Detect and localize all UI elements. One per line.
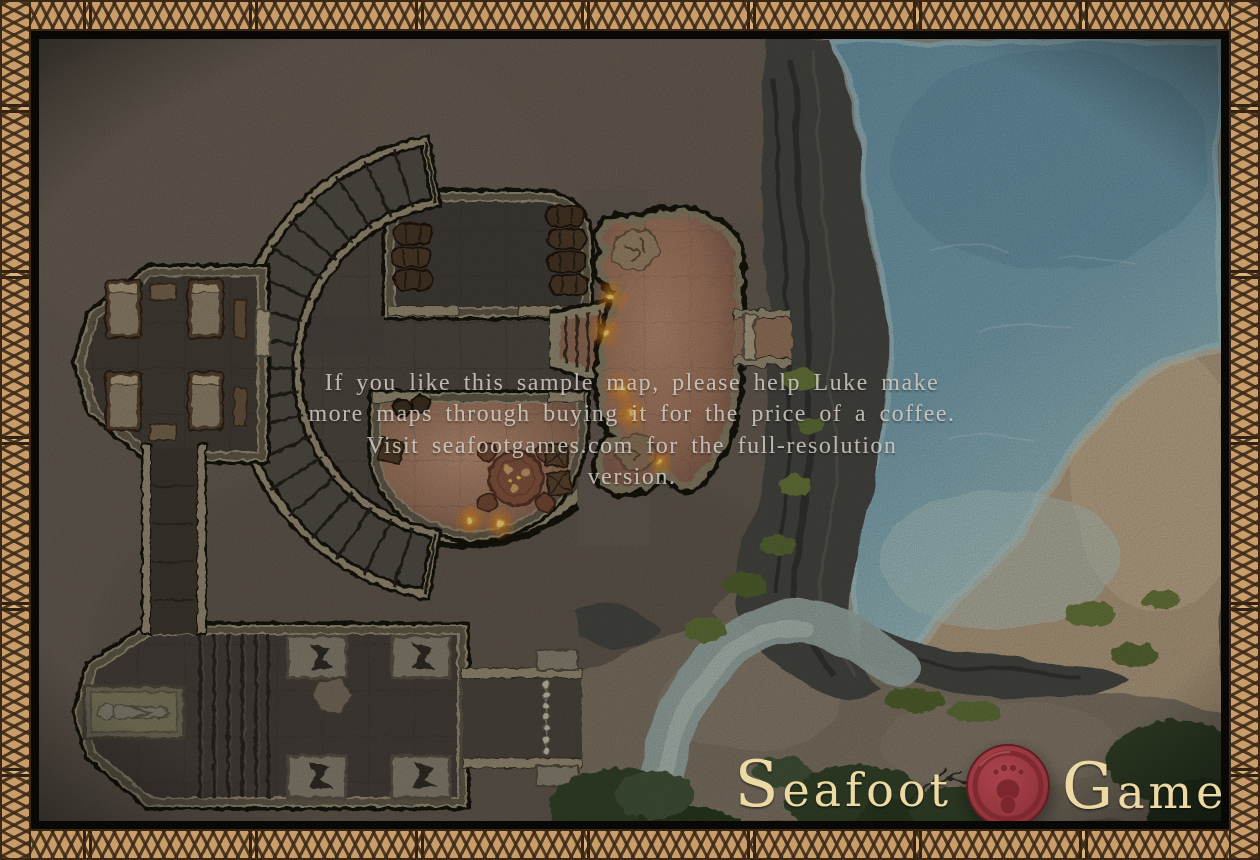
celtic-border-bottom (0, 829, 1260, 860)
battle-map-canvas: If you like this sample map, please help… (0, 0, 1260, 860)
map-frame: If you like this sample map, please help… (31, 31, 1229, 829)
vignette (39, 39, 1221, 821)
celtic-border-right (1229, 0, 1260, 860)
celtic-border-top (0, 0, 1260, 31)
watermark-line-1: If you like this sample map, please help… (325, 370, 940, 396)
watermark-line-2: more maps through buying it for the pric… (308, 401, 955, 427)
dungeon-shore-map: If you like this sample map, please help… (39, 39, 1221, 821)
watermark-line-4: version. (588, 464, 677, 490)
watermark-line-3: Visit seafootgames.com for the full-reso… (367, 433, 898, 459)
celtic-border-left (0, 0, 31, 860)
